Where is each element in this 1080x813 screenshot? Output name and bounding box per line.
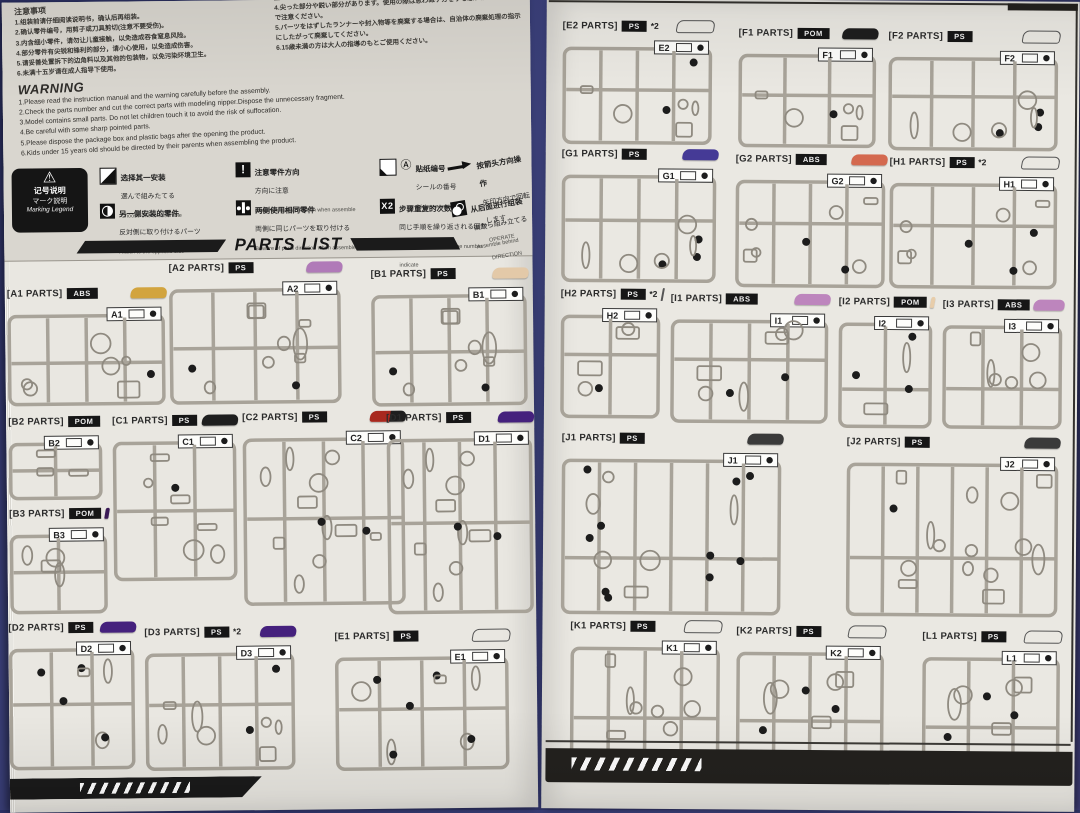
plastic-color-chip	[682, 149, 720, 160]
hazard-stripes-icon	[80, 782, 190, 794]
runner-label: [F2 PARTS]	[889, 30, 944, 41]
runner-b1-sprue: B1	[371, 283, 530, 409]
plastic-color-chip	[847, 625, 887, 638]
runner-g2: [G2 PARTS]ABSG2	[735, 151, 888, 290]
material-badge: ABS	[66, 287, 97, 298]
plastic-color-chip	[497, 411, 535, 422]
svg-text:B1: B1	[473, 290, 485, 300]
sprue-drawing: D2	[8, 637, 137, 772]
sprue-drawing: J2	[846, 452, 1061, 619]
runner-c2: [C2 PARTS]PSC2	[242, 409, 408, 609]
runner-c2-header: [C2 PARTS]PS	[242, 409, 406, 425]
material-badge: PS	[302, 411, 327, 422]
runner-f2: [F2 PARTS]PSF2	[888, 29, 1061, 154]
plastic-color-chip	[683, 620, 723, 633]
runner-e2-header: [E2 PARTS]PS*2	[563, 18, 715, 33]
material-badge: PS	[620, 432, 645, 443]
warning-triangle-icon: ⚠	[12, 170, 88, 186]
runner-label: [K2 PARTS]	[736, 625, 792, 636]
material-badge: ABS	[726, 293, 757, 304]
runner-h1-sprue: H1	[889, 173, 1060, 292]
runner-b3-sprue: B3	[9, 524, 110, 617]
svg-text:K1: K1	[666, 643, 678, 653]
runner-a1-header: [A1 PARTS]ABS	[7, 285, 167, 301]
right-parts-area: [E2 PARTS]PS*2E2[F1 PARTS]POMF1[F2 PARTS…	[542, 6, 1080, 742]
material-badge: PS	[622, 148, 647, 159]
runner-a2: [A2 PARTS]PSA2	[168, 259, 344, 407]
plastic-color-chip	[1021, 30, 1061, 43]
material-badge: PS	[905, 436, 930, 447]
runner-label: [F1 PARTS]	[739, 27, 794, 38]
runner-k1-header: [K1 PARTS]PS	[570, 618, 722, 633]
runner-label: [K1 PARTS]	[570, 620, 626, 631]
runner-b2: [B2 PARTS]POMB2	[8, 414, 105, 503]
sprue-drawing: C1	[112, 430, 240, 583]
material-badge: ABS	[998, 299, 1029, 310]
svg-text:I3: I3	[1009, 321, 1017, 331]
runner-b3: [B3 PARTS]POMB3	[9, 506, 110, 617]
svg-text:E2: E2	[658, 43, 669, 53]
runner-j1-sprue: J1	[561, 448, 784, 618]
runner-i3-header: [I3 PARTS]ABS	[943, 297, 1065, 312]
runner-label: [C2 PARTS]	[242, 411, 298, 423]
sprue-drawing: I3	[942, 315, 1065, 432]
runner-g1-header: [G1 PARTS]PS	[562, 146, 719, 161]
svg-text:J2: J2	[1005, 459, 1015, 469]
runner-label: [A1 PARTS]	[7, 288, 63, 300]
material-badge: PS	[430, 268, 455, 279]
runner-label: [I2 PARTS]	[839, 296, 890, 307]
runner-j2-header: [J2 PARTS]PS	[847, 434, 1061, 449]
marking-legend: ⚠ 记号说明 マーク説明 Marking Legend 选择其一安装 選んで組み…	[3, 153, 532, 237]
runner-e1-sprue: E1	[335, 645, 512, 773]
plastic-color-chip	[103, 415, 105, 426]
warning-header-band: 注意事项 1.组装前请仔细阅读说明书，确认后再组装。 2.确认零件编号，用剪子或…	[2, 0, 533, 262]
material-badge: POM	[68, 415, 101, 426]
runner-label: [D2 PARTS]	[8, 622, 64, 634]
plastic-color-chip	[842, 28, 880, 39]
parts-list-title: PARTS LIST	[234, 234, 342, 255]
manual-left-page: 注意事项 1.组装前请仔细阅读说明书，确认后再组装。 2.确认零件编号，用剪子或…	[2, 0, 538, 813]
runner-e2-sprue: E2	[562, 36, 715, 147]
svg-text:I1: I1	[775, 316, 783, 326]
multiplier-note: *2	[978, 157, 986, 167]
svg-text:K2: K2	[830, 648, 842, 658]
runner-a2-header: [A2 PARTS]PS	[168, 259, 342, 275]
runner-j1: [J1 PARTS]PSJ1	[561, 430, 784, 618]
multiplier-note: *2	[649, 289, 657, 299]
warning-japanese: 窒息などの危険があります。 4.尖った部分や鋭い部分があります。使用の際は思わぬ…	[274, 0, 523, 67]
hazard-stripes-icon	[571, 757, 701, 771]
runner-g1-sprue: G1	[561, 164, 719, 285]
runner-d1-header: [D1 PARTS]PS	[386, 409, 534, 425]
runner-label: [H2 PARTS]	[561, 288, 617, 299]
runner-b2-header: [B2 PARTS]POM	[8, 414, 104, 429]
sprue-drawing: J1	[561, 448, 784, 618]
operate-arrow-icon	[445, 157, 473, 175]
sprue-drawing: A1	[7, 303, 168, 409]
runner-d3-header: [D3 PARTS]PS*2	[144, 624, 296, 640]
runner-l1-header: [L1 PARTS]PS	[922, 629, 1062, 644]
runner-h2: [H2 PARTS]PS*2H2	[560, 286, 663, 421]
runner-label: [J1 PARTS]	[562, 432, 616, 443]
runner-c1-sprue: C1	[112, 430, 240, 583]
material-badge: PS	[947, 30, 972, 41]
runner-i3-sprue: I3	[942, 315, 1065, 432]
x2-icon: X2	[380, 199, 395, 214]
material-badge: PS	[620, 288, 645, 299]
runner-i1-sprue: I1	[670, 309, 831, 426]
multiplier-note: *2	[651, 21, 659, 31]
manual-right-page: [E2 PARTS]PS*2E2[F1 PARTS]POMF1[F2 PARTS…	[541, 0, 1080, 812]
caution-direction-icon: !	[235, 162, 250, 177]
runner-g2-header: [G2 PARTS]ABS	[736, 151, 888, 166]
plastic-color-chip	[1032, 299, 1065, 310]
circled-a-icon: Ⓐ	[400, 159, 411, 174]
svg-text:D1: D1	[478, 434, 490, 444]
marking-legend-box: ⚠ 记号说明 マーク説明 Marking Legend	[12, 168, 89, 233]
assemble-behind-icon	[450, 200, 467, 217]
svg-text:A1: A1	[111, 310, 123, 320]
parts-list-right-bar	[350, 237, 460, 251]
warning-chinese: 注意事项 1.组装前请仔细阅读说明书，确认后再组装。 2.确认零件编号，用剪子或…	[14, 0, 263, 79]
runner-g1: [G1 PARTS]PSG1	[561, 146, 719, 285]
runner-f2-header: [F2 PARTS]PS	[889, 29, 1061, 44]
plastic-color-chip	[660, 287, 664, 300]
runner-label: [H1 PARTS]	[890, 156, 946, 167]
material-badge: POM	[69, 507, 102, 518]
runner-label: [E2 PARTS]	[563, 20, 618, 31]
sprue-drawing: B1	[371, 283, 530, 409]
plastic-color-chip	[99, 621, 137, 632]
material-badge: PS	[228, 262, 253, 273]
parts-list-left-bar	[76, 239, 226, 254]
runner-f1: [F1 PARTS]POMF1	[738, 25, 879, 150]
runner-d3-sprue: D3	[144, 642, 297, 774]
runner-i2-sprue: I2	[838, 312, 935, 431]
runner-k1: [K1 PARTS]PSK1	[569, 618, 722, 765]
plastic-color-chip	[1024, 437, 1062, 448]
sprue-drawing: I1	[670, 309, 831, 426]
material-badge: PS	[796, 625, 821, 636]
runner-label: [A2 PARTS]	[169, 262, 225, 274]
material-badge: PS	[981, 631, 1006, 642]
sprue-drawing: F1	[738, 43, 879, 150]
runner-label: [I1 PARTS]	[671, 293, 722, 304]
runner-i1: [I1 PARTS]ABSI1	[670, 291, 831, 426]
runner-d2: [D2 PARTS]PSD2	[8, 619, 138, 772]
runner-label: [D3 PARTS]	[144, 626, 200, 638]
runner-e2: [E2 PARTS]PS*2E2	[562, 18, 715, 147]
svg-text:C2: C2	[350, 433, 362, 443]
choose-one-icon	[100, 168, 117, 185]
material-badge: PS	[172, 414, 197, 425]
sticker-number-icon	[379, 159, 396, 176]
sprue-drawing: G1	[561, 164, 719, 285]
runner-d2-sprue: D2	[8, 637, 137, 772]
sprue-drawing: H1	[889, 173, 1060, 292]
sprue-drawing: H2	[560, 304, 663, 421]
same-both-sides-icon	[236, 200, 251, 215]
runner-a1: [A1 PARTS]ABSA1	[7, 285, 168, 409]
runner-b1-header: [B1 PARTS]PS	[371, 265, 529, 281]
runner-d3: [D3 PARTS]PS*2D3	[144, 624, 298, 774]
sprue-drawing: A2	[169, 277, 344, 407]
plastic-color-chip	[104, 507, 110, 518]
legend-box-en: Marking Legend	[12, 206, 88, 214]
left-parts-area: [A1 PARTS]ABSA1[A2 PARTS]PSA2[B1 PARTS]P…	[4, 255, 537, 775]
runner-f1-sprue: F1	[738, 43, 879, 150]
runner-f2-sprue: F2	[888, 47, 1061, 154]
runner-label: [L1 PARTS]	[922, 630, 977, 641]
runner-i2-header: [I2 PARTS]POM	[839, 294, 935, 309]
runner-d1-sprue: D1	[386, 427, 536, 617]
runner-label: [E1 PARTS]	[334, 630, 389, 642]
runner-k2-header: [K2 PARTS]PS	[736, 623, 886, 638]
runner-e1-header: [E1 PARTS]PS	[334, 627, 510, 643]
right-page-footer-bar	[545, 748, 1072, 786]
sprue-drawing: C2	[242, 427, 408, 609]
runner-h2-sprue: H2	[560, 304, 663, 421]
plastic-color-chip	[1023, 630, 1063, 643]
runner-label: [J2 PARTS]	[847, 436, 901, 447]
runner-g2-sprue: G2	[735, 169, 888, 290]
plastic-color-chip	[306, 261, 344, 272]
runner-i1-header: [I1 PARTS]ABS	[671, 291, 831, 306]
runner-label: [C1 PARTS]	[112, 415, 168, 427]
runner-k2: [K2 PARTS]PSK2	[735, 623, 886, 770]
svg-text:D3: D3	[241, 648, 253, 658]
svg-text:G2: G2	[832, 176, 844, 186]
runner-j1-header: [J1 PARTS]PS	[562, 430, 784, 446]
sprue-drawing: I2	[838, 312, 935, 431]
sprue-drawing: E1	[335, 645, 512, 773]
runner-c1-header: [C1 PARTS]PS	[112, 412, 238, 427]
runner-b2-sprue: B2	[8, 432, 105, 503]
material-badge: PS	[949, 156, 974, 167]
runner-j2: [J2 PARTS]PSJ2	[846, 434, 1061, 619]
plastic-color-chip	[201, 414, 239, 425]
plastic-color-chip	[1021, 156, 1061, 169]
runner-label: [I3 PARTS]	[943, 298, 994, 309]
plastic-color-chip	[675, 20, 715, 33]
plastic-color-chip	[747, 433, 785, 444]
plastic-color-chip	[259, 625, 297, 636]
multiplier-note: *2	[233, 626, 241, 636]
runner-h2-header: [H2 PARTS]PS*2	[561, 286, 663, 301]
plastic-color-chip	[492, 267, 530, 278]
runner-i2: [I2 PARTS]POMI2	[838, 294, 935, 431]
material-badge: PS	[393, 630, 418, 641]
left-page-footer-bar	[10, 776, 262, 800]
sprue-drawing: F2	[888, 47, 1061, 154]
opposite-side-icon	[100, 204, 115, 219]
legend-box-cn: 记号说明	[12, 185, 88, 197]
sprue-drawing: B2	[8, 432, 105, 503]
svg-text:C1: C1	[182, 437, 194, 447]
material-badge: PS	[630, 620, 655, 631]
runner-e1: [E1 PARTS]PSE1	[334, 627, 511, 773]
material-badge: PS	[204, 626, 229, 637]
sprue-drawing: G2	[735, 169, 888, 290]
plastic-color-chip	[851, 154, 889, 165]
runner-d1: [D1 PARTS]PSD1	[386, 409, 536, 617]
material-badge: POM	[894, 296, 927, 307]
runner-label: [B1 PARTS]	[371, 268, 427, 280]
runner-a1-sprue: A1	[7, 303, 168, 409]
runner-c2-sprue: C2	[242, 427, 408, 609]
svg-text:H2: H2	[607, 311, 619, 321]
svg-text:G1: G1	[663, 171, 675, 181]
material-badge: PS	[622, 20, 647, 31]
runner-h1: [H1 PARTS]PS*2H1	[889, 155, 1060, 292]
sprue-drawing: D3	[144, 642, 297, 774]
runner-label: [G1 PARTS]	[562, 148, 618, 159]
sprue-drawing: E2	[562, 36, 715, 147]
runner-f1-header: [F1 PARTS]POM	[739, 25, 879, 40]
runner-label: [G2 PARTS]	[736, 153, 792, 164]
runner-label: [B3 PARTS]	[9, 508, 65, 520]
runner-h1-header: [H1 PARTS]PS*2	[890, 155, 1060, 170]
plastic-color-chip	[930, 296, 936, 307]
plastic-color-chip	[130, 287, 168, 298]
svg-text:J1: J1	[728, 455, 738, 465]
sprue-drawing: D1	[386, 427, 536, 617]
material-badge: PS	[446, 411, 471, 422]
runner-b3-header: [B3 PARTS]POM	[9, 506, 109, 521]
runner-c1: [C1 PARTS]PSC1	[112, 412, 240, 583]
runner-i3: [I3 PARTS]ABSI3	[942, 297, 1065, 432]
sprue-drawing: B3	[9, 524, 110, 617]
material-badge: POM	[797, 27, 830, 38]
plastic-color-chip	[794, 293, 832, 304]
runner-k1-sprue: K1	[569, 636, 722, 765]
runner-j2-sprue: J2	[846, 452, 1061, 619]
sprue-drawing: K1	[569, 636, 722, 765]
runner-b1: [B1 PARTS]PSB1	[371, 265, 530, 409]
runner-label: [B2 PARTS]	[8, 416, 64, 428]
plastic-color-chip	[471, 628, 511, 641]
runner-label: [D1 PARTS]	[386, 412, 442, 424]
runner-a2-sprue: A2	[169, 277, 344, 407]
material-badge: PS	[68, 621, 93, 632]
material-badge: ABS	[796, 153, 827, 164]
runner-d2-header: [D2 PARTS]PS	[8, 619, 136, 634]
